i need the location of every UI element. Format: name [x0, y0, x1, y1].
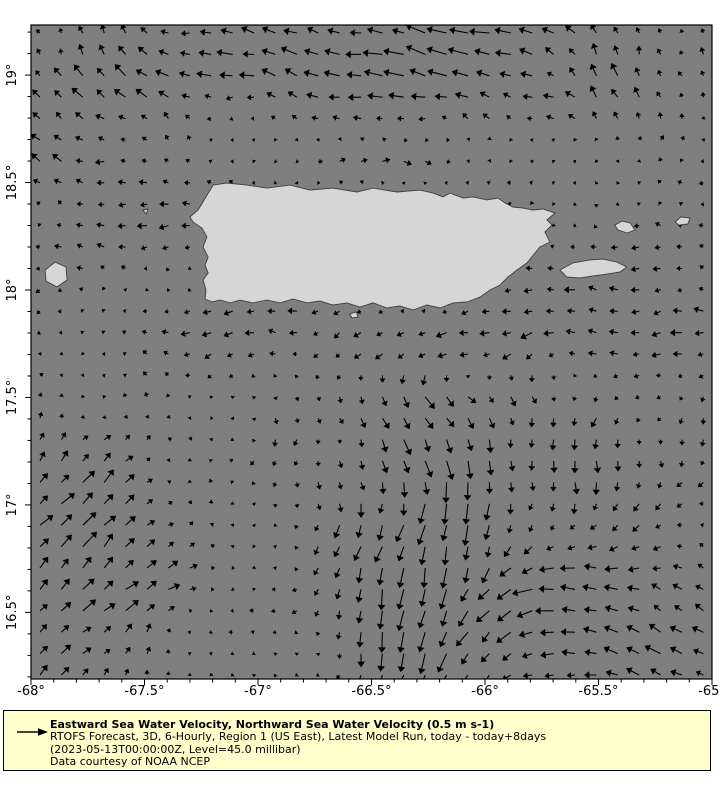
legend-credit: Data courtesy of NOAA NCEP — [50, 756, 710, 768]
legend-text-block: Eastward Sea Water Velocity, Northward S… — [50, 711, 710, 769]
ocean-background — [31, 25, 712, 679]
x-tick-label: -67.5° — [124, 684, 164, 699]
y-tick-label: 18° — [5, 278, 20, 301]
x-tick-label: -65.5° — [578, 684, 618, 699]
y-tick-label: 19° — [5, 64, 20, 87]
legend-subtitle: RTOFS Forecast, 3D, 6-Hourly, Region 1 (… — [50, 731, 710, 743]
x-tick-label: -68° — [17, 684, 45, 699]
x-tick-label: -66° — [471, 684, 499, 699]
legend-box: Eastward Sea Water Velocity, Northward S… — [3, 710, 711, 771]
reference-arrow-icon — [14, 724, 54, 740]
y-axis-labels: 19°18.5°18°17.5°17°16.5° — [5, 64, 20, 631]
y-tick-label: 17° — [5, 493, 20, 516]
x-axis-labels: -68°-67.5°-67°-66.5°-66°-65.5°-65° — [17, 684, 720, 699]
x-tick-label: -67° — [244, 684, 272, 699]
x-tick-label: -66.5° — [351, 684, 391, 699]
y-tick-label: 16.5° — [5, 595, 20, 630]
x-tick-label: -65° — [698, 684, 720, 699]
y-tick-label: 18.5° — [5, 165, 20, 200]
velocity-map-page: -68°-67.5°-67°-66.5°-66°-65.5°-65°19°18.… — [0, 0, 720, 800]
velocity-map-canvas: -68°-67.5°-67°-66.5°-66°-65.5°-65°19°18.… — [0, 0, 720, 710]
y-tick-label: 17.5° — [5, 380, 20, 415]
